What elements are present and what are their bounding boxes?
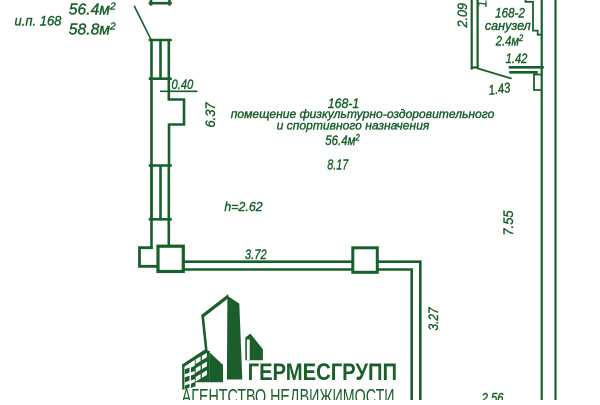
svg-text:56.4м2: 56.4м2 [69,2,116,19]
svg-text:6.37: 6.37 [203,102,219,128]
svg-text:0.40: 0.40 [172,77,194,92]
svg-text:56.4м2: 56.4м2 [325,132,360,148]
svg-text:и спортивного назначения: и спортивного назначения [277,119,430,133]
svg-text:АГЕНТСТВО НЕДВИЖИМОСТИ: АГЕНТСТВО НЕДВИЖИМОСТИ [182,385,395,400]
svg-text:58.8м2: 58.8м2 [69,22,116,39]
svg-text:1.42: 1.42 [506,51,528,66]
svg-text:ГЕРМЕСГРУПП: ГЕРМЕСГРУПП [248,358,397,385]
svg-text:2.4м2: 2.4м2 [495,32,524,49]
svg-text:2.56: 2.56 [481,390,504,400]
svg-text:3.27: 3.27 [425,307,441,331]
svg-text:7.55: 7.55 [501,210,517,236]
svg-text:санузел: санузел [485,18,531,33]
svg-text:3.72: 3.72 [245,247,267,262]
svg-text:8.17: 8.17 [327,156,349,173]
svg-text:h=2.62: h=2.62 [224,199,262,215]
svg-text:и.п. 168: и.п. 168 [15,13,62,29]
svg-text:1.: 1. [474,0,489,7]
svg-text:2.09: 2.09 [454,2,470,28]
svg-text:1.43: 1.43 [488,80,512,98]
